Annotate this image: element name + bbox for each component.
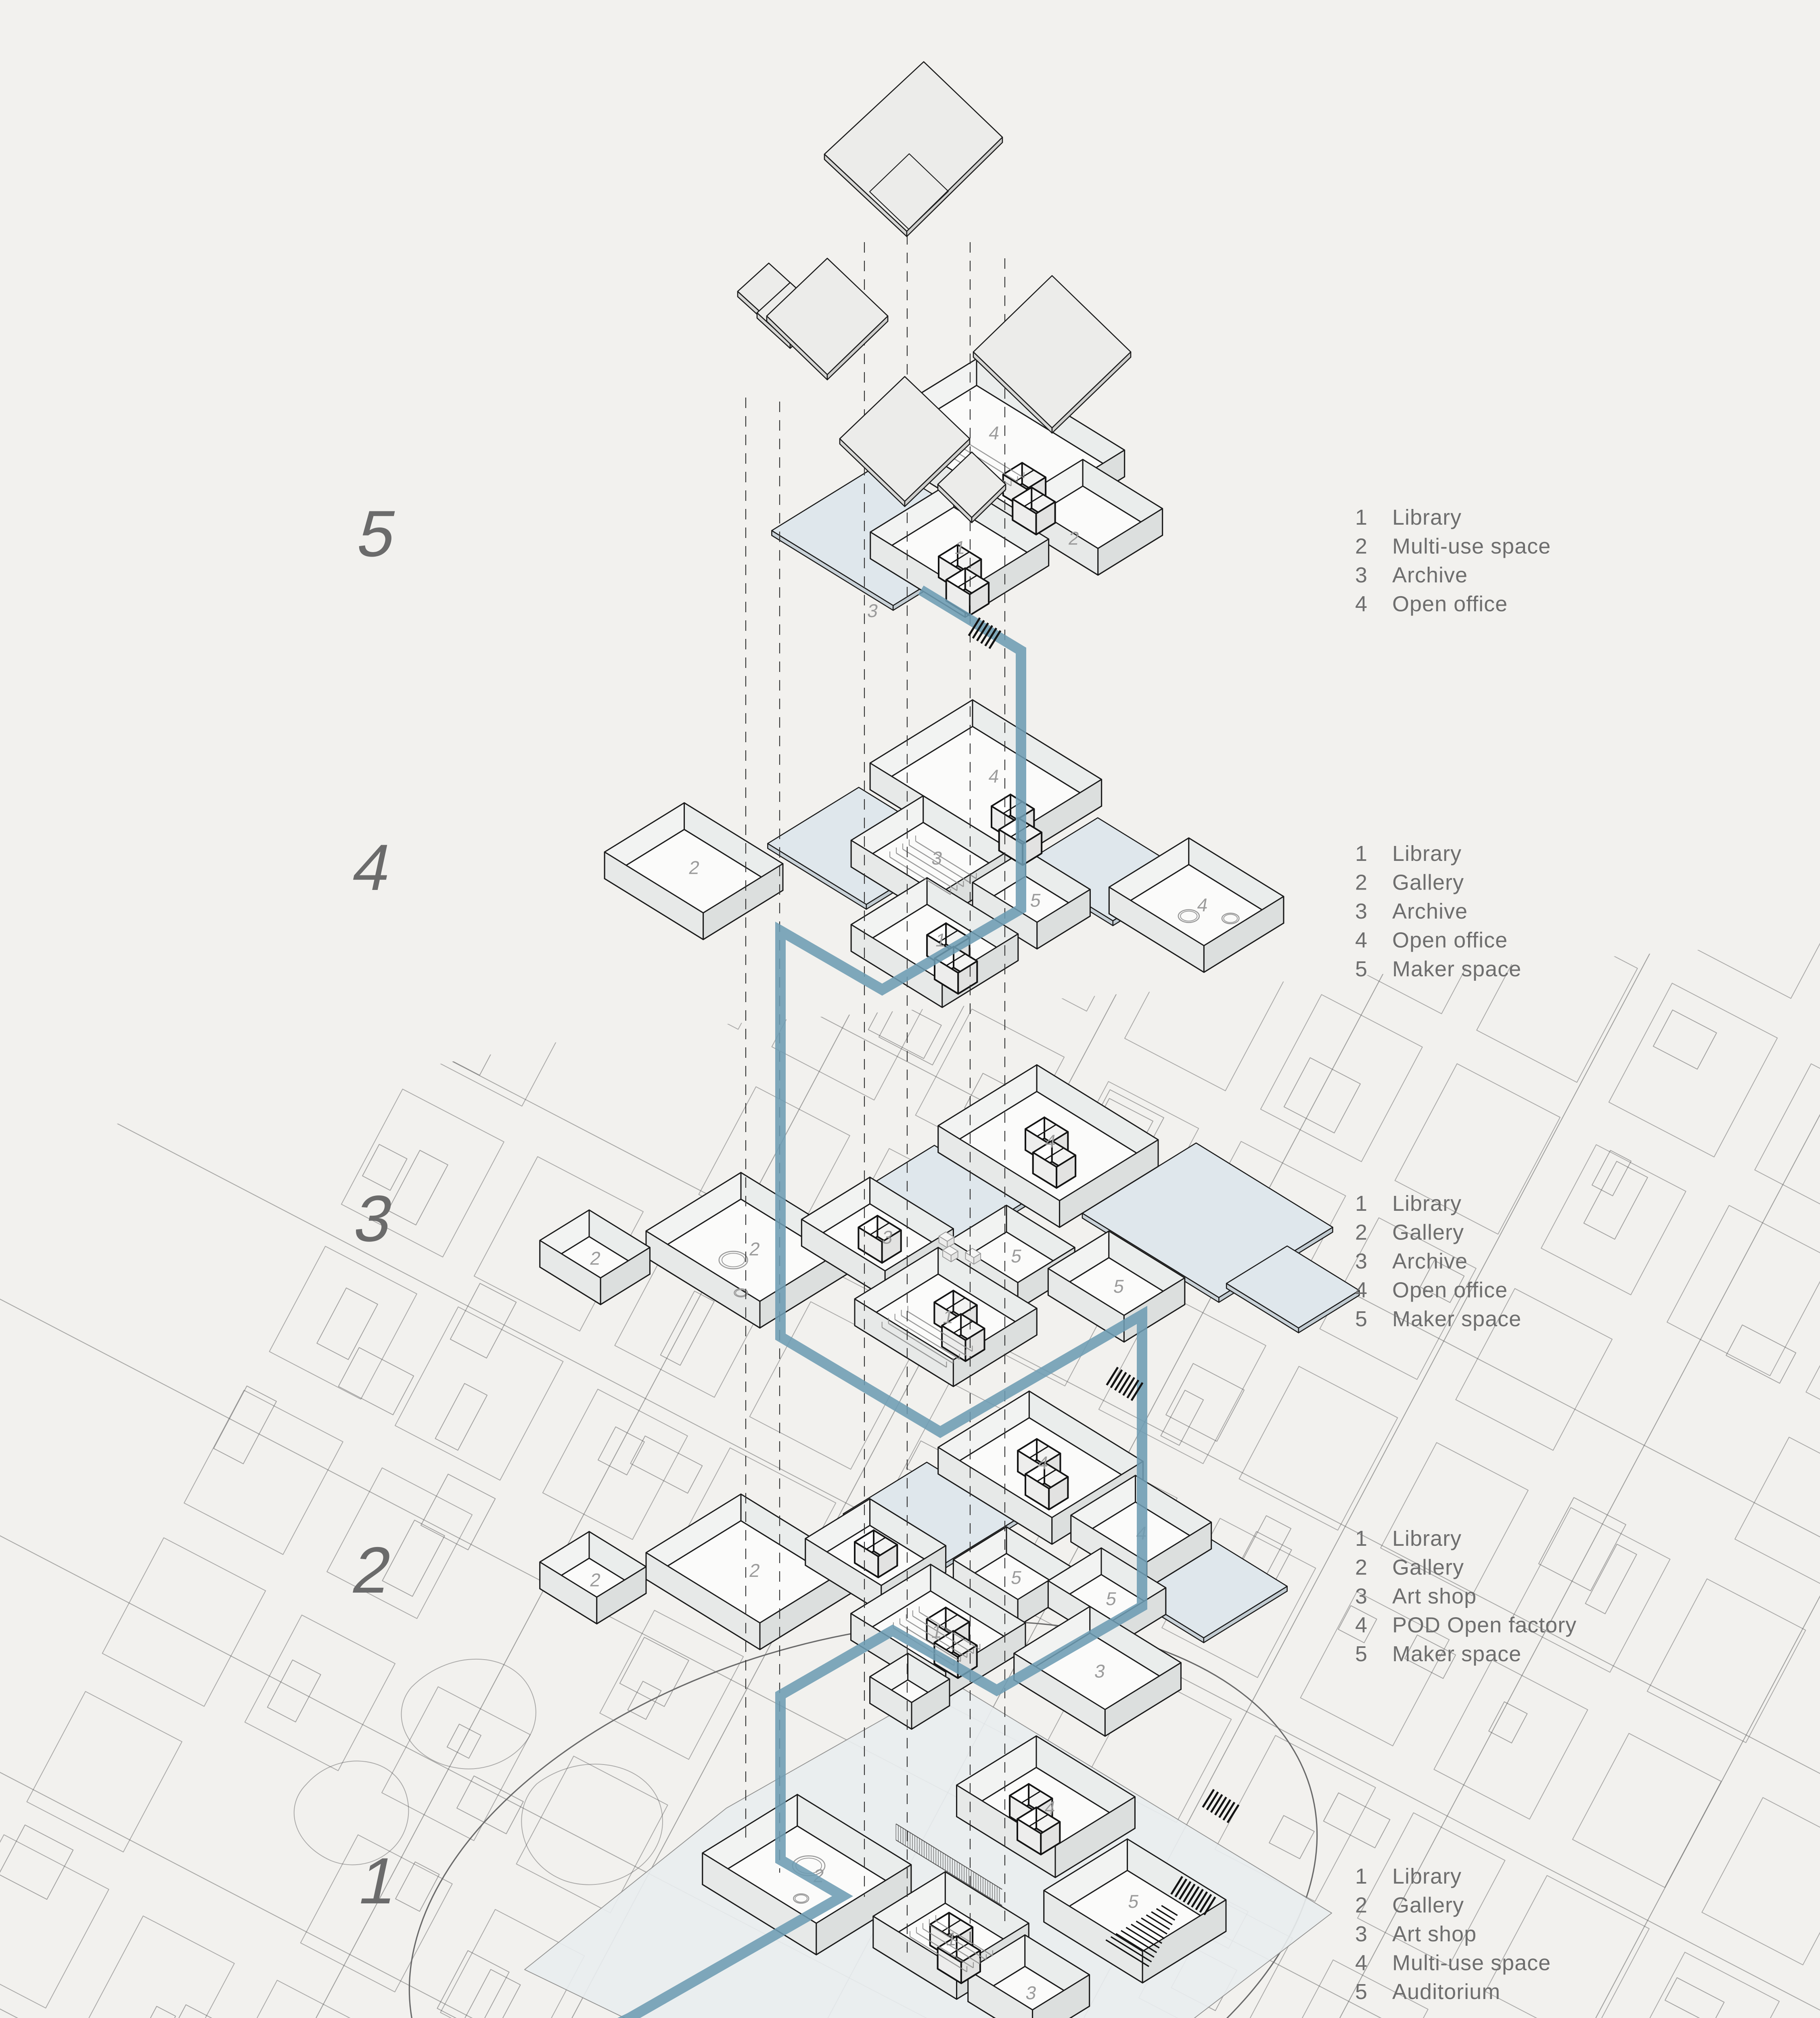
legend-item-label: Auditorium [1392, 1980, 1500, 2004]
drawing-canvas: 425134422551343225154235413421543211Libr… [0, 0, 1820, 2018]
legend-item-label: Library [1392, 1191, 1462, 1216]
legend-item-number: 1 [1355, 842, 1368, 866]
legend-item-label: Archive [1392, 1249, 1468, 1273]
legend-item-number: 1 [1355, 1191, 1368, 1216]
legend-item-label: Art shop [1392, 1584, 1477, 1608]
legend-item-number: 3 [1355, 1584, 1368, 1608]
legend-item-label: Open office [1392, 592, 1508, 616]
legend-item-label: Archive [1392, 899, 1468, 923]
legend-item-label: Open office [1392, 928, 1508, 952]
legend-item-number: 3 [1355, 899, 1368, 923]
legend-item-number: 4 [1355, 1951, 1368, 1975]
legend-item-label: Art shop [1392, 1922, 1477, 1946]
legend-item-number: 4 [1355, 1278, 1368, 1302]
legend-item-number: 5 [1355, 1642, 1368, 1666]
legend-item-number: 2 [1355, 1555, 1368, 1580]
legend-item-label: Maker space [1392, 1307, 1521, 1331]
legend-item-label: Library [1392, 1864, 1462, 1888]
legend-item-number: 4 [1355, 1613, 1368, 1637]
legend-item-number: 2 [1355, 871, 1368, 895]
legend-item-number: 5 [1355, 1307, 1368, 1331]
legend-item-label: POD Open factory [1392, 1613, 1577, 1637]
legend-item-number: 4 [1355, 928, 1368, 952]
legend-item-label: Maker space [1392, 957, 1521, 981]
legend-item-number: 2 [1355, 1893, 1368, 1918]
legend-item-number: 2 [1355, 1220, 1368, 1245]
legend-item-label: Multi-use space [1392, 1951, 1551, 1975]
legend-item-number: 3 [1355, 1249, 1368, 1273]
legend-item-label: Gallery [1392, 1893, 1464, 1918]
legend-item-number: 3 [1355, 1922, 1368, 1946]
legend-item-label: Gallery [1392, 1220, 1464, 1245]
legend-item-number: 4 [1355, 592, 1368, 616]
legend-item-label: Gallery [1392, 871, 1464, 895]
legend-item-number: 2 [1355, 534, 1368, 559]
legend-item-label: Multi-use space [1392, 534, 1551, 559]
legend-item-label: Gallery [1392, 1555, 1464, 1580]
legend-item-number: 5 [1355, 1980, 1368, 2004]
legend-item-number: 3 [1355, 563, 1368, 587]
legend-item-number: 1 [1355, 505, 1368, 530]
legend-item-label: Library [1392, 505, 1462, 530]
legend-item-number: 1 [1355, 1864, 1368, 1888]
legend-item-label: Maker space [1392, 1642, 1521, 1666]
exploded-axonometric-diagram: 425134422551343225154235413421543211Libr… [0, 0, 1820, 2018]
legend-item-label: Library [1392, 1526, 1462, 1551]
legend-item-number: 5 [1355, 957, 1368, 981]
legend-item-label: Open office [1392, 1278, 1508, 1302]
legend-item-number: 1 [1355, 1526, 1368, 1551]
legend-item-label: Library [1392, 842, 1462, 866]
legend-item-label: Archive [1392, 563, 1468, 587]
